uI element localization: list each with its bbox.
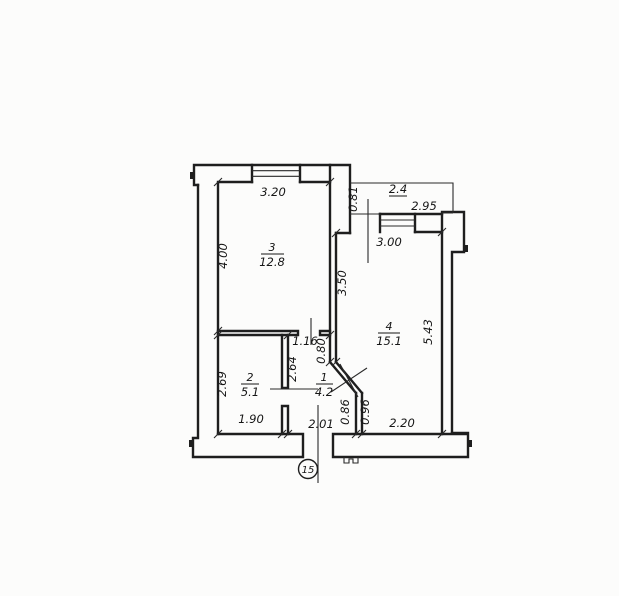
room1-number: 1 xyxy=(321,371,328,384)
room2-area: 5.1 xyxy=(241,385,259,399)
room3-window-panes xyxy=(252,171,300,177)
dim-diag-lower-left: 0.86 xyxy=(338,399,352,425)
nub-bottom-right xyxy=(468,440,472,447)
floor-plan-drawing: 3.20 4.00 3.50 3.00 0.81 2.95 5.43 2.69 … xyxy=(0,0,619,596)
room4-window-jambs xyxy=(380,214,415,232)
floor-plan-sheet: 3.20 4.00 3.50 3.00 0.81 2.95 5.43 2.69 … xyxy=(0,0,619,596)
nub-top-left xyxy=(190,172,194,179)
dim-room2-left: 2.69 xyxy=(215,371,229,397)
unit-number-badge: 15 xyxy=(299,460,318,479)
dim-hall-left-wall: 2.64 xyxy=(285,356,299,382)
room2-number: 2 xyxy=(247,371,254,384)
dim-room4-right: 5.43 xyxy=(421,319,435,345)
dim-room2-bottom: 1.90 xyxy=(238,412,264,426)
balcony-area: 2.4 xyxy=(389,182,407,196)
dim-hall-bottom: 2.01 xyxy=(308,417,334,431)
dim-room3-top: 3.20 xyxy=(260,185,286,199)
dim-room4-left: 3.50 xyxy=(335,270,349,296)
interior-partitions xyxy=(218,165,362,434)
dim-hall-right-upper: 0.80 xyxy=(314,338,328,364)
dim-balcony-width: 2.95 xyxy=(411,199,437,213)
nub-top-right xyxy=(464,245,468,252)
room3-window-jambs xyxy=(252,165,300,182)
room3-area: 12.8 xyxy=(259,255,285,269)
dim-room4-bottom: 2.20 xyxy=(389,416,415,430)
dim-room4-top: 3.00 xyxy=(376,235,402,249)
room1-area: 4.2 xyxy=(315,385,333,399)
nub-bottom-left xyxy=(189,440,193,447)
unit-number: 15 xyxy=(302,465,315,476)
dim-balcony-door: 0.81 xyxy=(346,186,360,212)
room4-top-wall xyxy=(336,214,442,233)
room4-number: 4 xyxy=(386,320,393,333)
outer-wall-right xyxy=(442,212,464,434)
partition-room2-hall xyxy=(282,335,288,434)
room4-window-panes xyxy=(380,220,415,226)
dim-diag-lower-right: 0.96 xyxy=(358,399,372,425)
room3-number: 3 xyxy=(269,241,276,254)
room4-area: 15.1 xyxy=(376,334,402,348)
dim-room3-left: 4.00 xyxy=(216,243,230,269)
inner-wall-top xyxy=(218,182,330,434)
